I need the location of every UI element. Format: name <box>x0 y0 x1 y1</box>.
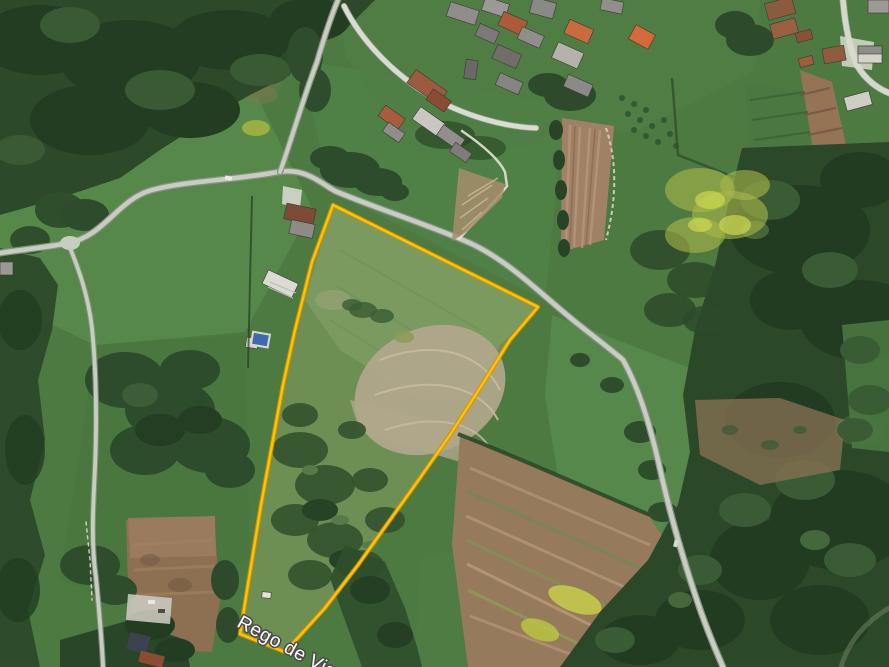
car-parked-white <box>148 600 155 604</box>
car-parked-dark <box>158 609 165 613</box>
satellite-map[interactable]: Rego de Vigo <box>0 0 889 667</box>
junction-apron <box>60 236 80 250</box>
